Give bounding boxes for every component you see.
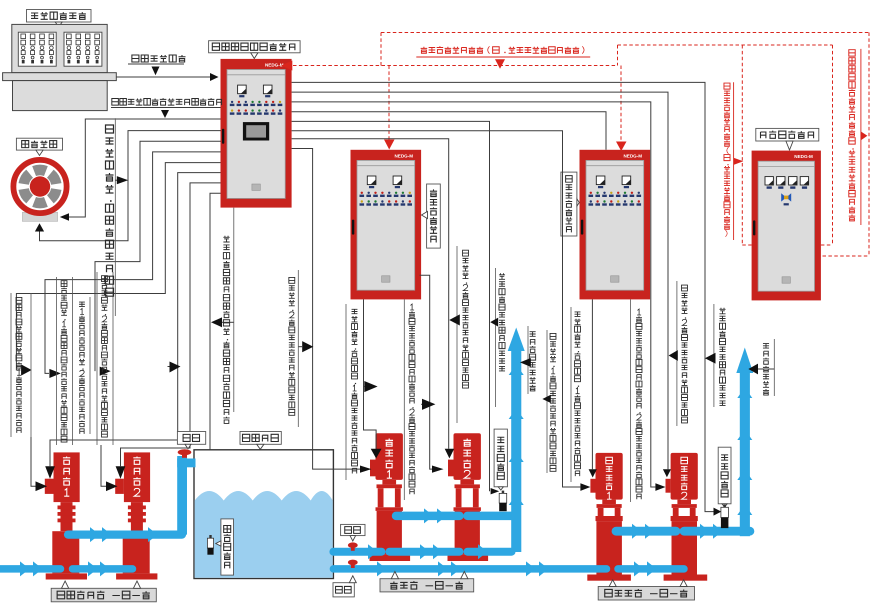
svg-text:NEDG-M: NEDG-M [394, 153, 413, 158]
svg-text:NEDG-M: NEDG-M [794, 154, 813, 159]
svg-text:NEDG-M: NEDG-M [265, 63, 284, 68]
svg-text:NEDG-M: NEDG-M [623, 153, 642, 158]
